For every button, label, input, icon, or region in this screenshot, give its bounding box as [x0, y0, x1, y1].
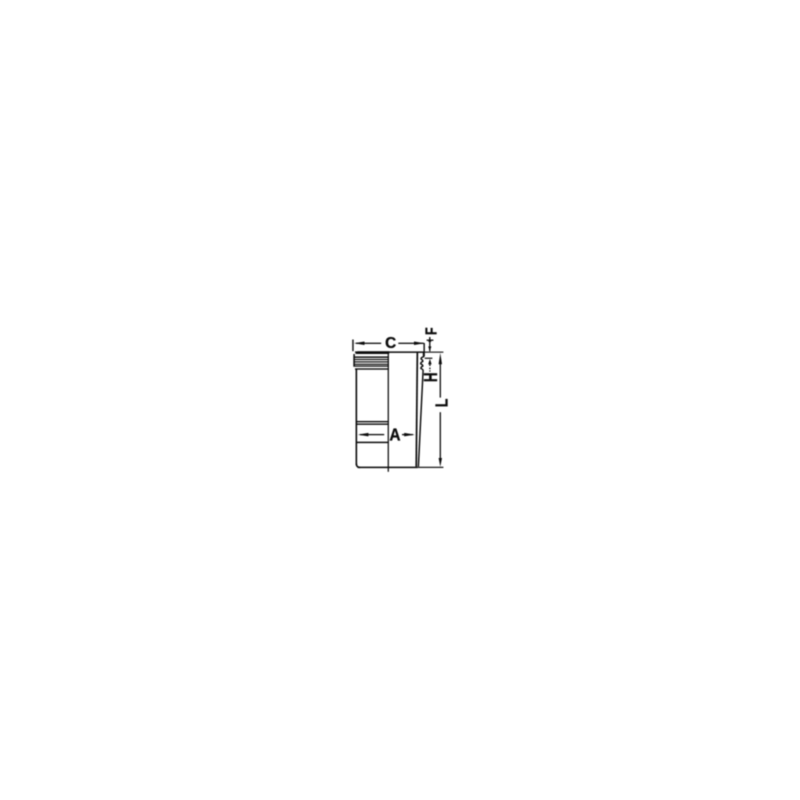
svg-text:L: L: [432, 399, 452, 408]
svg-text:F: F: [423, 327, 441, 335]
svg-text:A: A: [389, 425, 400, 445]
svg-text:H: H: [422, 373, 442, 382]
svg-text:C: C: [385, 335, 396, 352]
